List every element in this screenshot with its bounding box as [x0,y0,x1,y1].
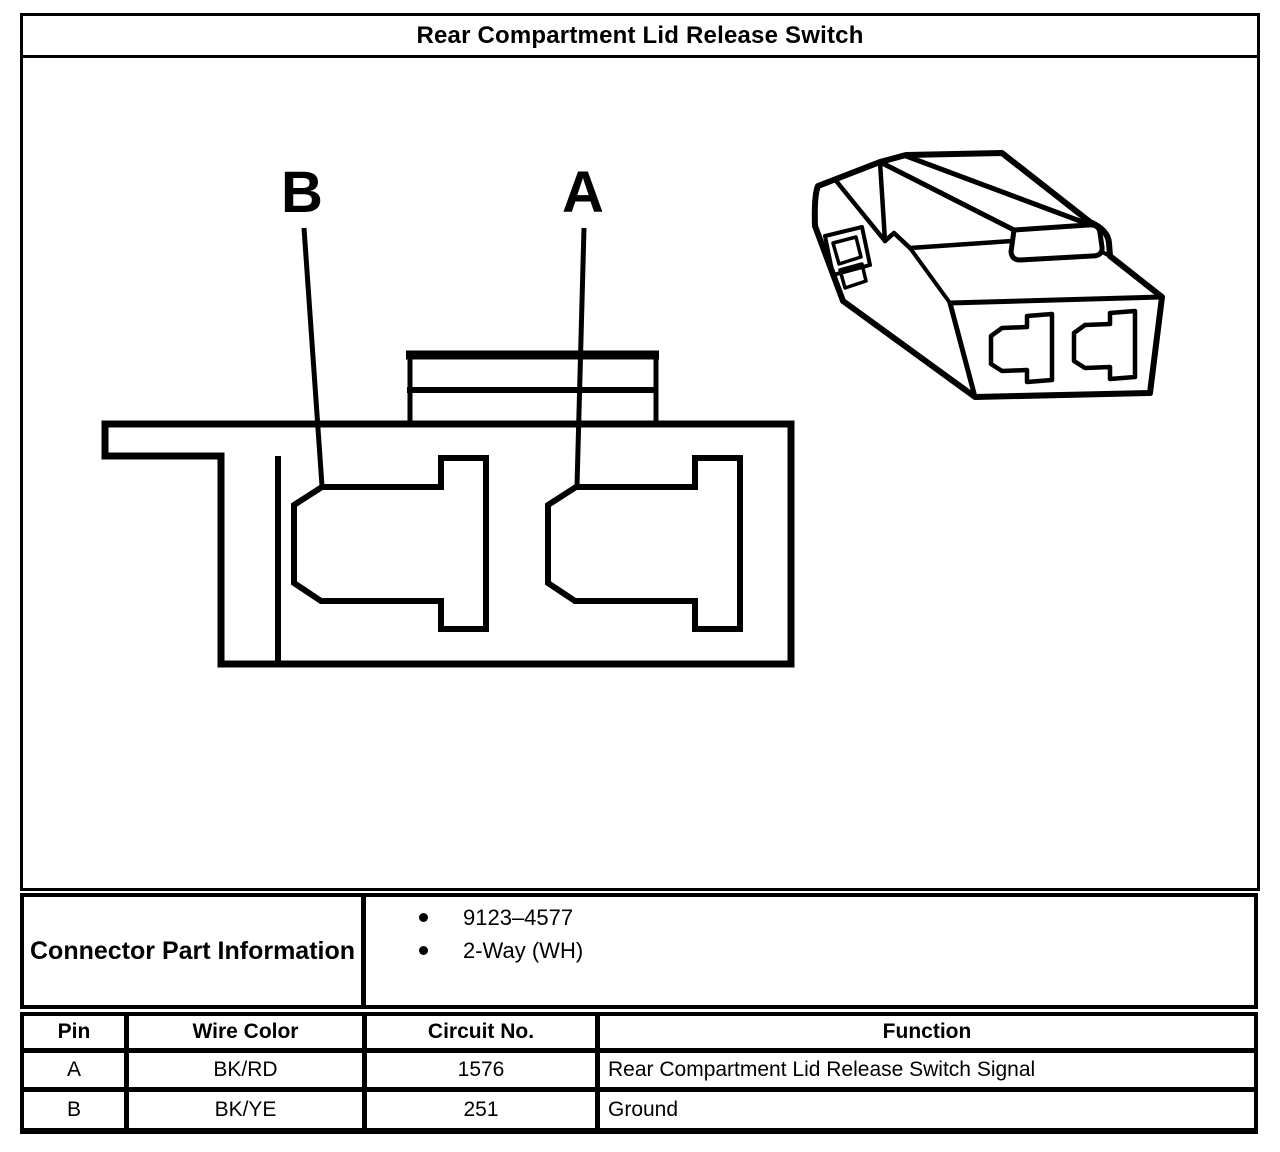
connector-3d-drawing [815,153,1162,397]
pin-table-header-row: Pin Wire Color Circuit No. Function [24,1016,1254,1053]
pin-b-leader-line [304,228,322,486]
connector-face-view: B A [105,160,791,664]
cell-function: Rear Compartment Lid Release Switch Sign… [600,1053,1254,1087]
header-circuit-no: Circuit No. [367,1016,600,1048]
title-bar: Rear Compartment Lid Release Switch [23,16,1257,58]
pin-b-label: B [281,160,323,225]
table-row: B BK/YE 251 Ground [24,1092,1254,1128]
bullet-icon [419,913,428,922]
cell-function: Ground [600,1092,1254,1128]
cell-circuit-no: 1576 [367,1053,600,1087]
connector-latch [406,355,659,422]
bullet-icon [419,946,428,955]
cell-wire-color: BK/YE [129,1092,367,1128]
connector-diagram-svg: B A [23,58,1257,888]
pin-a-label: A [562,160,604,225]
cell-pin: A [24,1053,129,1087]
pin-a-leader-line [577,228,584,486]
cell-circuit-no: 251 [367,1092,600,1128]
pin-table: Pin Wire Color Circuit No. Function A BK… [20,1012,1258,1134]
part-info-bullet-list: 9123–4577 2-Way (WH) [366,897,1254,1005]
header-wire-color: Wire Color [129,1016,367,1048]
part-info-bullet-item: 2-Way (WH) [366,934,1254,967]
page-title: Rear Compartment Lid Release Switch [416,22,863,50]
part-info-table: Connector Part Information 9123–4577 2-W… [20,893,1258,1009]
part-info-label: Connector Part Information [24,897,366,1005]
cell-wire-color: BK/RD [129,1053,367,1087]
diagram-panel: B A [23,58,1257,888]
table-row: A BK/RD 1576 Rear Compartment Lid Releas… [24,1053,1254,1092]
part-number: 9123–4577 [463,905,573,931]
header-function: Function [600,1016,1254,1048]
diagram-frame: Rear Compartment Lid Release Switch [20,13,1260,891]
page: Rear Compartment Lid Release Switch [0,0,1280,1152]
part-info-bullet-item: 9123–4577 [366,901,1254,934]
cell-pin: B [24,1092,129,1128]
connector-way-color: 2-Way (WH) [463,938,583,964]
header-pin: Pin [24,1016,129,1048]
